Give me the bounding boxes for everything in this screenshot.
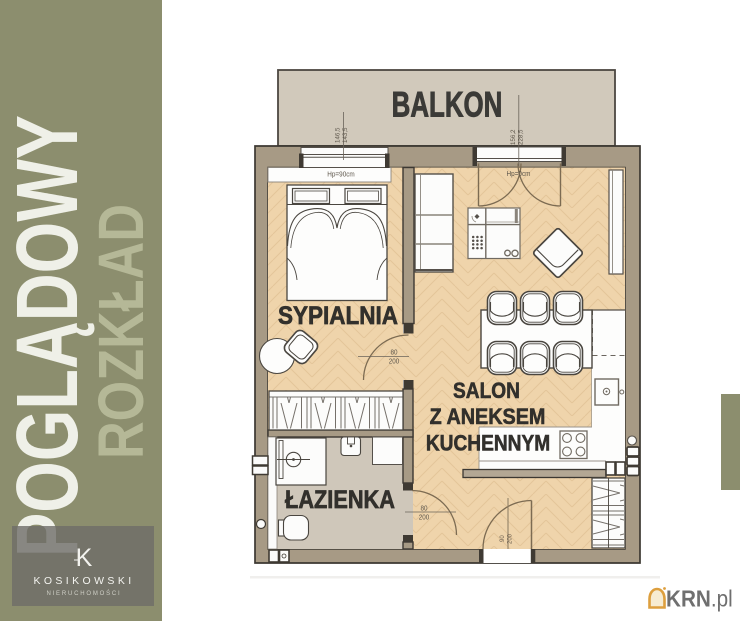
svg-text:Z ANEKSEM: Z ANEKSEM bbox=[430, 405, 546, 429]
svg-text:90: 90 bbox=[500, 535, 506, 542]
svg-text:BALKON: BALKON bbox=[392, 85, 503, 125]
svg-text:200: 200 bbox=[508, 533, 514, 544]
svg-text:SALON: SALON bbox=[453, 379, 520, 404]
svg-text:200: 200 bbox=[389, 358, 400, 365]
svg-text:200: 200 bbox=[419, 514, 430, 521]
svg-text:143,5: 143,5 bbox=[342, 127, 349, 143]
svg-text:80: 80 bbox=[391, 349, 398, 356]
svg-text:NIERUCHOMOŚCI: NIERUCHOMOŚCI bbox=[46, 589, 121, 597]
svg-text:Hp=90cm: Hp=90cm bbox=[327, 171, 355, 179]
svg-text:ŁAZIENKA: ŁAZIENKA bbox=[285, 486, 395, 514]
svg-text:K: K bbox=[76, 544, 93, 572]
svg-text:SYPIALNIA: SYPIALNIA bbox=[278, 302, 398, 330]
svg-text:228,5: 228,5 bbox=[518, 129, 525, 145]
svg-text:POGLĄDOWY: POGLĄDOWY bbox=[0, 115, 96, 557]
svg-text:KRN.pl: KRN.pl bbox=[666, 585, 733, 611]
svg-text:146,5: 146,5 bbox=[335, 127, 342, 143]
svg-text:KUCHENNYM: KUCHENNYM bbox=[426, 431, 550, 456]
svg-text:80: 80 bbox=[421, 505, 428, 512]
svg-text:ROZKŁAD: ROZKŁAD bbox=[85, 204, 157, 459]
svg-text:KOSIKOWSKI: KOSIKOWSKI bbox=[33, 575, 134, 587]
svg-text:156,2: 156,2 bbox=[510, 129, 517, 145]
svg-text:Hp=0cm: Hp=0cm bbox=[507, 171, 531, 179]
